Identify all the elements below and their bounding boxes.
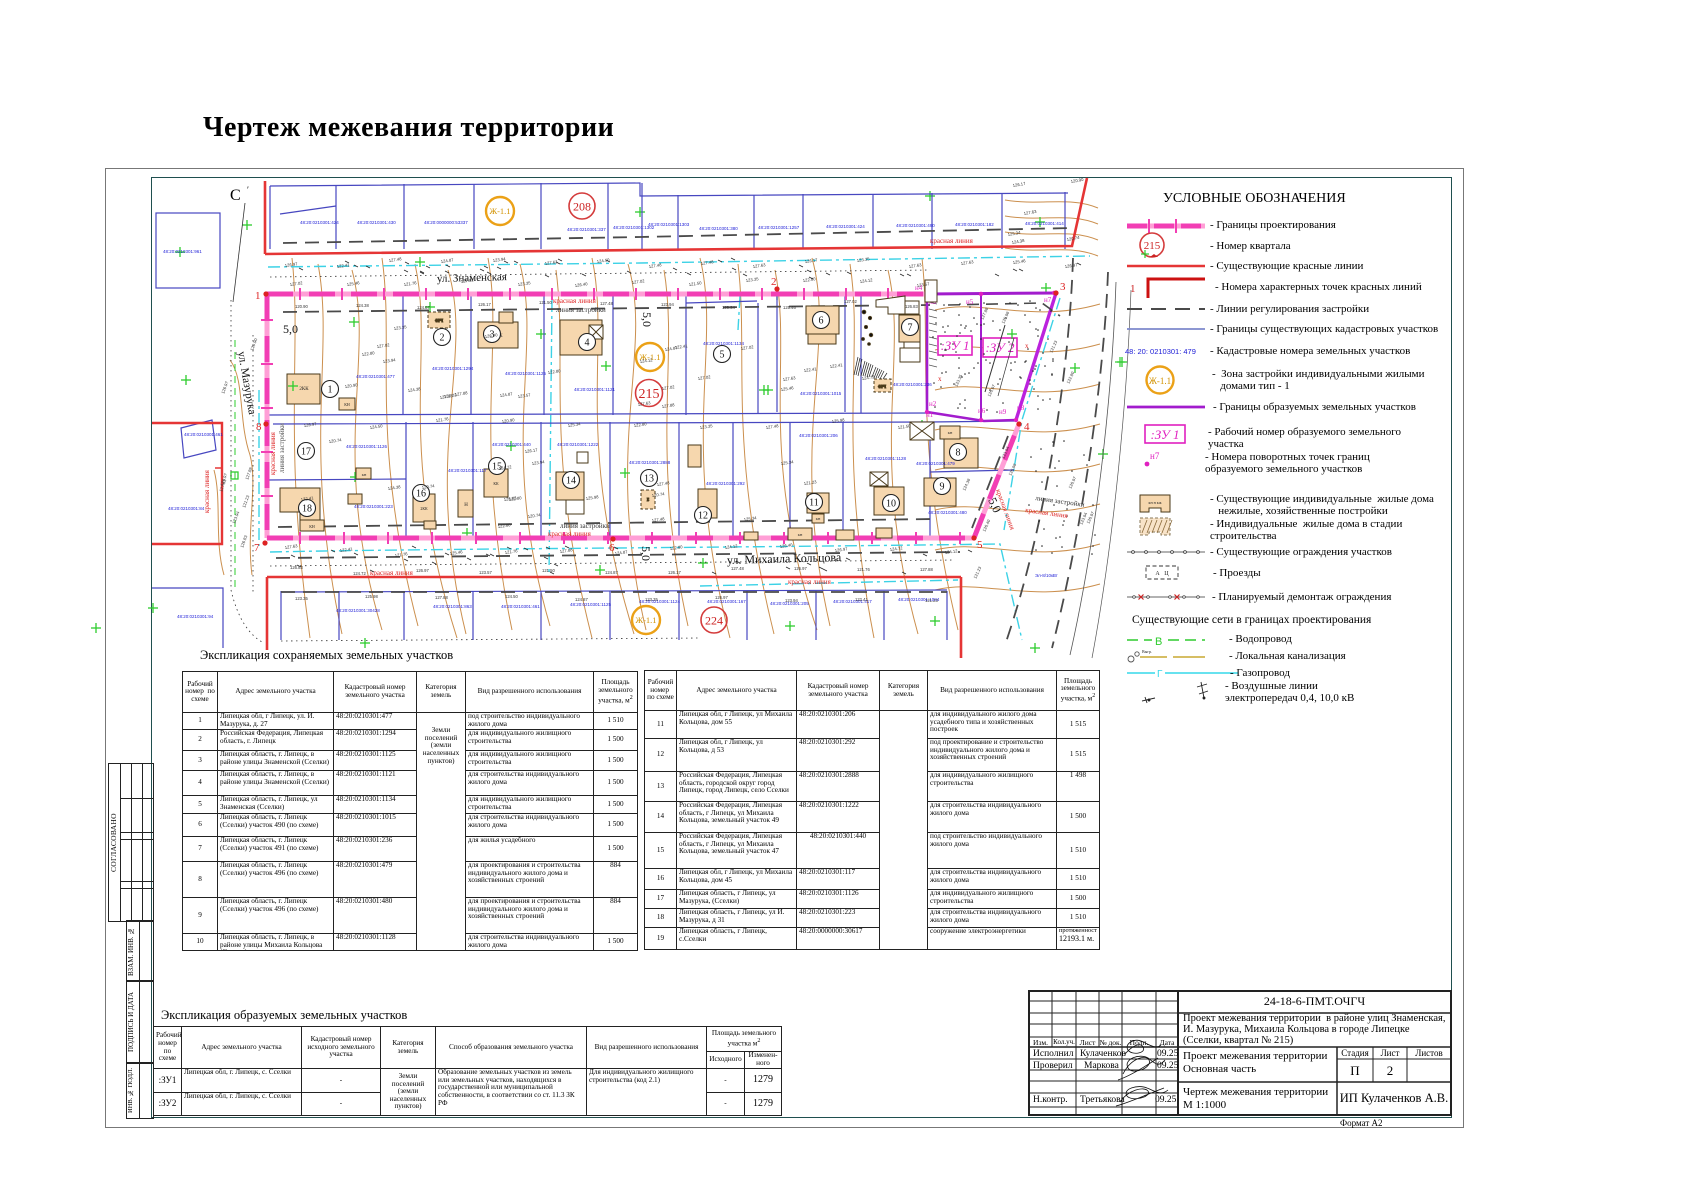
svg-text:124.87: 124.87 — [664, 345, 678, 352]
svg-text:121.23: 121.23 — [803, 479, 817, 486]
svg-text:127.02: 127.02 — [844, 299, 857, 304]
svg-text:124.87: 124.87 — [614, 549, 628, 556]
svg-text:126.97: 126.97 — [794, 566, 807, 571]
svg-text:2КК: 2КК — [299, 387, 309, 392]
svg-text:127.48: 127.48 — [700, 259, 714, 266]
svg-text:121.23: 121.23 — [241, 494, 250, 508]
svg-text:н5: н5 — [966, 298, 974, 306]
svg-text:КН: КН — [309, 524, 315, 529]
svg-text:123.35: 123.35 — [953, 373, 963, 387]
svg-text:н9: н9 — [999, 408, 1007, 416]
svg-text:123.57: 123.57 — [479, 570, 492, 575]
svg-text:124.87: 124.87 — [575, 597, 588, 602]
svg-text:14: 14 — [566, 476, 576, 487]
svg-text:127.48: 127.48 — [648, 262, 662, 269]
svg-text:123.35: 123.35 — [295, 596, 308, 601]
svg-text:127.48: 127.48 — [600, 301, 613, 306]
svg-text:125.46: 125.46 — [346, 280, 360, 287]
svg-text:48:20:0210301:1303: 48:20:0210301:1303 — [648, 222, 690, 227]
svg-text:ул. Михаила Кольцова: ул. Михаила Кольцова — [727, 550, 842, 567]
svg-text:126.17: 126.17 — [1012, 181, 1026, 188]
svg-text:н1: н1 — [926, 411, 934, 419]
svg-text:48:20:0210301:461: 48:20:0210301:461 — [501, 604, 540, 609]
svg-text:124.12: 124.12 — [639, 357, 653, 364]
svg-text:125.98: 125.98 — [365, 594, 378, 599]
svg-text:4: 4 — [1024, 421, 1030, 433]
svg-text:126.83: 126.83 — [239, 534, 248, 548]
svg-text:48:20:0210301:1015: 48:20:0210301:1015 — [800, 391, 842, 396]
svg-text:н6: н6 — [978, 407, 986, 415]
svg-text:48:20:0210301:206: 48:20:0210301:206 — [799, 433, 838, 438]
svg-text:5: 5 — [977, 539, 983, 551]
svg-text:5: 5 — [720, 350, 725, 361]
svg-text:121.76: 121.76 — [857, 567, 870, 572]
svg-text:48:20:0210301:1294: 48:20:0210301:1294 — [432, 366, 474, 371]
svg-text:127.02: 127.02 — [289, 280, 303, 287]
svg-text:120.90: 120.90 — [344, 382, 358, 389]
svg-text:ФРЧ: ФРЧ — [878, 384, 886, 389]
svg-text:127.63: 127.63 — [960, 259, 974, 266]
svg-text:127.88: 127.88 — [661, 402, 675, 409]
svg-text:120.74: 120.74 — [421, 483, 435, 490]
svg-text:122.80: 122.80 — [1065, 370, 1075, 384]
svg-text:12: 12 — [698, 511, 708, 522]
svg-text:48:20:0210301:477: 48:20:0210301:477 — [356, 374, 395, 379]
svg-text:48:20:0210301:1128: 48:20:0210301:1128 — [865, 456, 906, 461]
svg-text:121.23: 121.23 — [972, 565, 982, 579]
svg-text:8: 8 — [956, 448, 961, 459]
svg-text:48:20:0210301:1222: 48:20:0210301:1222 — [557, 442, 599, 447]
svg-text:126.97: 126.97 — [986, 383, 996, 397]
svg-text:127.63: 127.63 — [1023, 209, 1037, 216]
svg-text:125.46: 125.46 — [449, 549, 463, 556]
svg-text:126.83: 126.83 — [290, 565, 303, 570]
svg-text:Эл-8/10кВт: Эл-8/10кВт — [1035, 573, 1058, 578]
svg-text:48:20:0210301:380: 48:20:0210301:380 — [699, 226, 738, 231]
svg-text:127.63: 127.63 — [908, 262, 922, 269]
svg-text:7: 7 — [908, 323, 913, 334]
svg-text:123.35: 123.35 — [393, 324, 407, 331]
svg-text:48:20:0210301:961: 48:20:0210301:961 — [163, 249, 202, 254]
svg-text:В: В — [1155, 636, 1162, 648]
svg-text:121.76: 121.76 — [394, 551, 408, 558]
svg-text:16: 16 — [416, 489, 426, 500]
svg-text:красная линия: красная линия — [548, 530, 592, 538]
svg-text:КН: КН — [798, 533, 803, 537]
svg-text:122.41: 122.41 — [336, 262, 350, 269]
svg-text:120.90: 120.90 — [249, 337, 258, 351]
svg-text:красная линия: красная линия — [553, 297, 597, 305]
svg-text:127.02: 127.02 — [376, 342, 390, 349]
svg-text:7: 7 — [254, 542, 260, 554]
svg-text:5,0: 5,0 — [639, 546, 653, 561]
svg-text:КН: КН — [816, 517, 821, 521]
svg-text:125.46: 125.46 — [780, 385, 794, 392]
svg-text:48:20:0210301:292: 48:20:0210301:292 — [706, 481, 745, 486]
svg-text:48:20:0210301:1257: 48:20:0210301:1257 — [758, 225, 800, 230]
svg-text:126.97: 126.97 — [715, 595, 728, 600]
svg-text:125.98: 125.98 — [1007, 462, 1017, 476]
svg-text:x: x — [938, 375, 942, 383]
svg-text:123.94: 123.94 — [382, 357, 396, 364]
svg-text:125.34: 125.34 — [1007, 230, 1021, 237]
svg-text:3: 3 — [1060, 281, 1066, 293]
svg-text:122.80: 122.80 — [633, 421, 647, 428]
svg-text:48:20:0210301:414: 48:20:0210301:414 — [1025, 221, 1064, 226]
svg-text:127.02: 127.02 — [661, 384, 675, 391]
svg-text:127.48: 127.48 — [731, 566, 744, 571]
svg-text:124.12: 124.12 — [859, 277, 873, 284]
svg-text:126.97: 126.97 — [1067, 475, 1077, 489]
svg-text:123.35: 123.35 — [699, 423, 713, 430]
svg-text:120.90: 120.90 — [295, 304, 308, 309]
svg-text:126.97: 126.97 — [834, 546, 848, 553]
svg-text:13: 13 — [644, 474, 654, 485]
svg-text:КН: КН — [362, 473, 367, 477]
svg-text:КН: КН — [948, 431, 953, 435]
svg-text:215: 215 — [1144, 240, 1161, 252]
svg-text:48:20:0210301:1126: 48:20:0210301:1126 — [346, 444, 387, 449]
svg-text:127.48: 127.48 — [765, 423, 779, 430]
svg-text:127.63: 127.63 — [284, 543, 298, 550]
svg-text:122.80: 122.80 — [669, 544, 683, 551]
svg-text:127.02: 127.02 — [740, 344, 754, 351]
svg-text:48:20:0210301:337: 48:20:0210301:337 — [567, 227, 606, 232]
svg-text:48:20:0210301:480: 48:20:0210301:480 — [928, 510, 967, 515]
svg-text:48:20:0210301:424: 48:20:0210301:424 — [826, 224, 865, 229]
svg-text:123.94: 123.94 — [531, 459, 545, 466]
svg-text:122.41: 122.41 — [829, 362, 843, 369]
svg-text:48:20:0210301:236: 48:20:0210301:236 — [893, 382, 932, 387]
svg-text::ЗУ 1: :ЗУ 1 — [1150, 427, 1179, 442]
svg-text:126.97: 126.97 — [303, 421, 317, 428]
svg-text:Ж-1.1: Ж-1.1 — [1149, 376, 1171, 386]
svg-text:123.94: 123.94 — [661, 302, 674, 307]
svg-text:Выгр.: Выгр. — [1142, 649, 1152, 654]
svg-text:126.97: 126.97 — [1064, 262, 1078, 269]
svg-text:127.88: 127.88 — [435, 595, 448, 600]
svg-text:126.17: 126.17 — [524, 447, 538, 454]
svg-text:красная линия: красная линия — [370, 569, 414, 577]
svg-text:125.34: 125.34 — [567, 421, 581, 428]
svg-text:н7: н7 — [1150, 451, 1160, 461]
svg-text:кн н кж: кн н кж — [1149, 500, 1162, 505]
svg-text:127.88: 127.88 — [920, 567, 933, 572]
svg-text:5,0: 5,0 — [640, 312, 654, 327]
svg-text:красная линия: красная линия — [1025, 506, 1069, 520]
svg-text:48:20:0210301:182: 48:20:0210301:182 — [955, 222, 994, 227]
svg-text:48:20:0210301:1121: 48:20:0210301:1121 — [574, 387, 615, 392]
svg-text:линия застройки: линия застройки — [556, 306, 606, 314]
svg-text:126.97: 126.97 — [220, 380, 229, 394]
svg-text:124.72: 124.72 — [861, 374, 875, 381]
svg-text:17: 17 — [301, 447, 311, 458]
svg-text:127.63: 127.63 — [782, 375, 796, 382]
svg-text:6: 6 — [819, 316, 824, 327]
svg-text:48:20:0000000:53337: 48:20:0000000:53337 — [424, 220, 468, 225]
svg-text:224: 224 — [705, 613, 723, 627]
svg-text:Н: Н — [464, 503, 468, 508]
svg-text:124.38: 124.38 — [387, 484, 401, 491]
svg-text:124.87: 124.87 — [440, 257, 454, 264]
svg-text:Г: Г — [1157, 669, 1163, 680]
svg-text:Ж-1.1: Ж-1.1 — [635, 615, 656, 625]
svg-text:124.50: 124.50 — [505, 594, 518, 599]
svg-text:126.17: 126.17 — [668, 570, 681, 575]
svg-text:122.80: 122.80 — [547, 368, 561, 375]
svg-text:9: 9 — [940, 482, 945, 493]
svg-text:48:20:0210301:1125: 48:20:0210301:1125 — [505, 371, 546, 376]
svg-text:н7: н7 — [1044, 296, 1052, 304]
svg-text:2КК: 2КК — [420, 506, 428, 511]
svg-text:2: 2 — [771, 276, 777, 288]
svg-text:Ж-1.1: Ж-1.1 — [489, 206, 510, 216]
svg-text:124.87: 124.87 — [605, 570, 618, 575]
svg-text:123.94: 123.94 — [785, 598, 798, 603]
svg-text:127.02: 127.02 — [631, 278, 645, 285]
svg-text:125.34: 125.34 — [780, 459, 794, 466]
svg-text:127.63: 127.63 — [218, 478, 227, 492]
svg-text:красная линия: красная линия — [788, 578, 832, 586]
svg-text:121.76: 121.76 — [435, 416, 449, 423]
svg-text:127.02: 127.02 — [697, 374, 711, 381]
svg-text:121.76: 121.76 — [403, 280, 417, 287]
svg-text:127.48: 127.48 — [388, 256, 402, 263]
svg-text:125.46: 125.46 — [1012, 258, 1026, 265]
svg-text:48:20:0210301:430: 48:20:0210301:430 — [357, 220, 396, 225]
svg-text:124.12: 124.12 — [724, 543, 738, 550]
svg-text:48:20:0210301:490: 48:20:0210301:490 — [896, 223, 935, 228]
svg-text:124.38: 124.38 — [356, 303, 369, 308]
svg-text:8: 8 — [256, 421, 262, 433]
svg-text:48: 20: 0210301: 479: 48: 20: 0210301: 479 — [1125, 347, 1196, 356]
svg-text:КН: КН — [344, 402, 350, 407]
svg-text:124.50: 124.50 — [369, 423, 383, 430]
svg-text:18: 18 — [302, 504, 312, 515]
svg-text:121.50: 121.50 — [542, 568, 555, 573]
svg-text:122.41: 122.41 — [339, 546, 353, 553]
svg-text:127.88: 127.88 — [454, 390, 468, 397]
svg-text:48:20:0210301:479: 48:20:0210301:479 — [916, 461, 955, 466]
svg-text:125.34: 125.34 — [722, 305, 735, 310]
svg-text:красная линия: красная линия — [930, 237, 974, 245]
svg-text:красная линия: красная линия — [269, 431, 277, 475]
svg-text:123.94: 123.94 — [492, 256, 506, 263]
svg-text:С: С — [230, 187, 241, 204]
svg-text:48:20:0210301:1134: 48:20:0210301:1134 — [703, 341, 744, 346]
svg-text:124.12: 124.12 — [944, 548, 958, 555]
svg-text:линия застройки: линия застройки — [560, 522, 610, 530]
svg-text:А Ц: А Ц — [1155, 571, 1169, 577]
svg-text:123.35: 123.35 — [745, 276, 759, 283]
svg-text:1: 1 — [1130, 283, 1136, 295]
svg-text:122.41: 122.41 — [803, 366, 817, 373]
svg-text:48:20:0210301:1125: 48:20:0210301:1125 — [570, 602, 611, 607]
svg-text:линия застройки: линия застройки — [278, 423, 286, 473]
svg-text:н8: н8 — [1017, 404, 1025, 412]
svg-text:120.74: 120.74 — [328, 437, 342, 444]
svg-text:124.72: 124.72 — [353, 571, 366, 576]
svg-text:48:20:0210301:440: 48:20:0210301:440 — [492, 442, 531, 447]
svg-text:КК: КК — [493, 481, 499, 486]
svg-text:125.98: 125.98 — [1000, 310, 1010, 324]
svg-text:48:20:0210301:2888: 48:20:0210301:2888 — [629, 460, 671, 465]
svg-text:48:20:0210301:461: 48:20:0210301:461 — [184, 432, 223, 437]
svg-text:120.74: 120.74 — [651, 491, 665, 498]
svg-text:10: 10 — [886, 499, 896, 510]
svg-text:125.46: 125.46 — [783, 305, 796, 310]
svg-text:121.23: 121.23 — [925, 598, 938, 603]
svg-text:121.50: 121.50 — [539, 300, 552, 305]
svg-text:126.17: 126.17 — [478, 302, 491, 307]
svg-text:124.38: 124.38 — [407, 386, 421, 393]
svg-text:124.72: 124.72 — [889, 545, 903, 552]
svg-text:ФРЧ: ФРЧ — [435, 318, 443, 323]
svg-text:126.40: 126.40 — [574, 281, 588, 288]
svg-text:123.35: 123.35 — [856, 256, 870, 263]
svg-text:123.35: 123.35 — [645, 597, 658, 602]
svg-text:121.76: 121.76 — [504, 548, 518, 555]
svg-text:48:20:0210301:94: 48:20:0210301:94 — [177, 614, 214, 619]
svg-text:126.83: 126.83 — [905, 304, 918, 309]
svg-text:121.50: 121.50 — [897, 423, 911, 430]
svg-text:122.80: 122.80 — [361, 350, 375, 357]
svg-text:120.90: 120.90 — [1070, 177, 1084, 184]
svg-text:48:20:0210301:84: 48:20:0210301:84 — [168, 506, 205, 511]
svg-text:208: 208 — [573, 199, 591, 213]
svg-text:125.34: 125.34 — [743, 515, 757, 522]
svg-text:126.17: 126.17 — [804, 257, 818, 264]
svg-text:127.63: 127.63 — [752, 262, 766, 269]
svg-text:4: 4 — [585, 338, 590, 349]
svg-text:122.41: 122.41 — [855, 597, 868, 602]
svg-text:48:20:0210301:117: 48:20:0210301:117 — [448, 468, 487, 473]
svg-text:121.50: 121.50 — [688, 280, 702, 287]
svg-text:1: 1 — [328, 385, 333, 396]
svg-text:123.57: 123.57 — [517, 392, 531, 399]
svg-text:48:20:0210301:424: 48:20:0210301:424 — [300, 220, 339, 225]
svg-text:125.98: 125.98 — [585, 494, 599, 501]
svg-text:126.40: 126.40 — [779, 542, 793, 549]
svg-text:124.38: 124.38 — [961, 477, 971, 491]
svg-text:122.80: 122.80 — [497, 522, 511, 529]
svg-text:48:20:0210301:223: 48:20:0210301:223 — [354, 504, 393, 509]
svg-text:11: 11 — [809, 498, 819, 509]
svg-text:124.38: 124.38 — [1011, 238, 1025, 245]
svg-text:48:20:0210301:30428: 48:20:0210301:30428 — [336, 608, 380, 613]
svg-text:123.35: 123.35 — [517, 280, 531, 287]
svg-text:2: 2 — [440, 333, 445, 344]
svg-text:126.97: 126.97 — [416, 568, 429, 573]
svg-text:′: ′ — [247, 185, 249, 195]
svg-text:124.87: 124.87 — [417, 305, 430, 310]
svg-text:48:20:0210301:863: 48:20:0210301:863 — [433, 604, 472, 609]
svg-text:120.74: 120.74 — [527, 512, 541, 519]
svg-text:127.88: 127.88 — [559, 547, 573, 554]
svg-text:5,0: 5,0 — [283, 322, 298, 336]
svg-text:124.72: 124.72 — [498, 464, 512, 471]
svg-text:1: 1 — [255, 290, 261, 302]
svg-text:123.94: 123.94 — [231, 510, 240, 524]
svg-text:124.87: 124.87 — [499, 391, 513, 398]
